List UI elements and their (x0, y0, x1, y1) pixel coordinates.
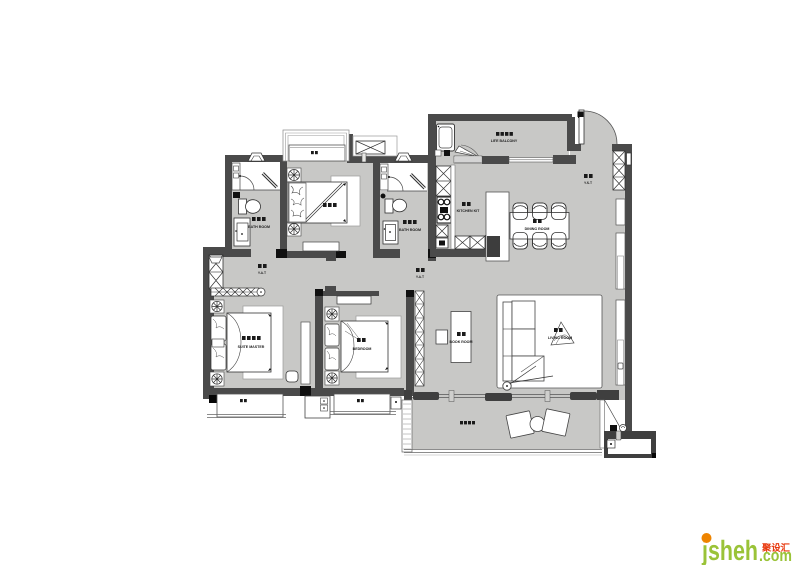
svg-text:KITCHEN KIT: KITCHEN KIT (457, 209, 481, 213)
svg-text:BATH ROOM: BATH ROOM (248, 225, 270, 229)
svg-text:DINING ROOM: DINING ROOM (525, 227, 550, 231)
svg-text:Y.S.T: Y.S.T (584, 181, 593, 185)
svg-text:SUITE MASTER: SUITE MASTER (238, 345, 265, 349)
svg-text:聚设汇: 聚设汇 (761, 542, 790, 554)
svg-text:BATH ROOM: BATH ROOM (399, 228, 421, 232)
svg-text:Y.A.T: Y.A.T (258, 271, 267, 275)
svg-text:BEDROOM: BEDROOM (353, 347, 372, 351)
svg-text:BOOK ROOM: BOOK ROOM (450, 340, 473, 344)
svg-text:LIVING ROOM: LIVING ROOM (548, 336, 572, 340)
svg-text:LIFE BALCONY: LIFE BALCONY (491, 139, 518, 143)
svg-text:Y.A.T: Y.A.T (416, 275, 425, 279)
